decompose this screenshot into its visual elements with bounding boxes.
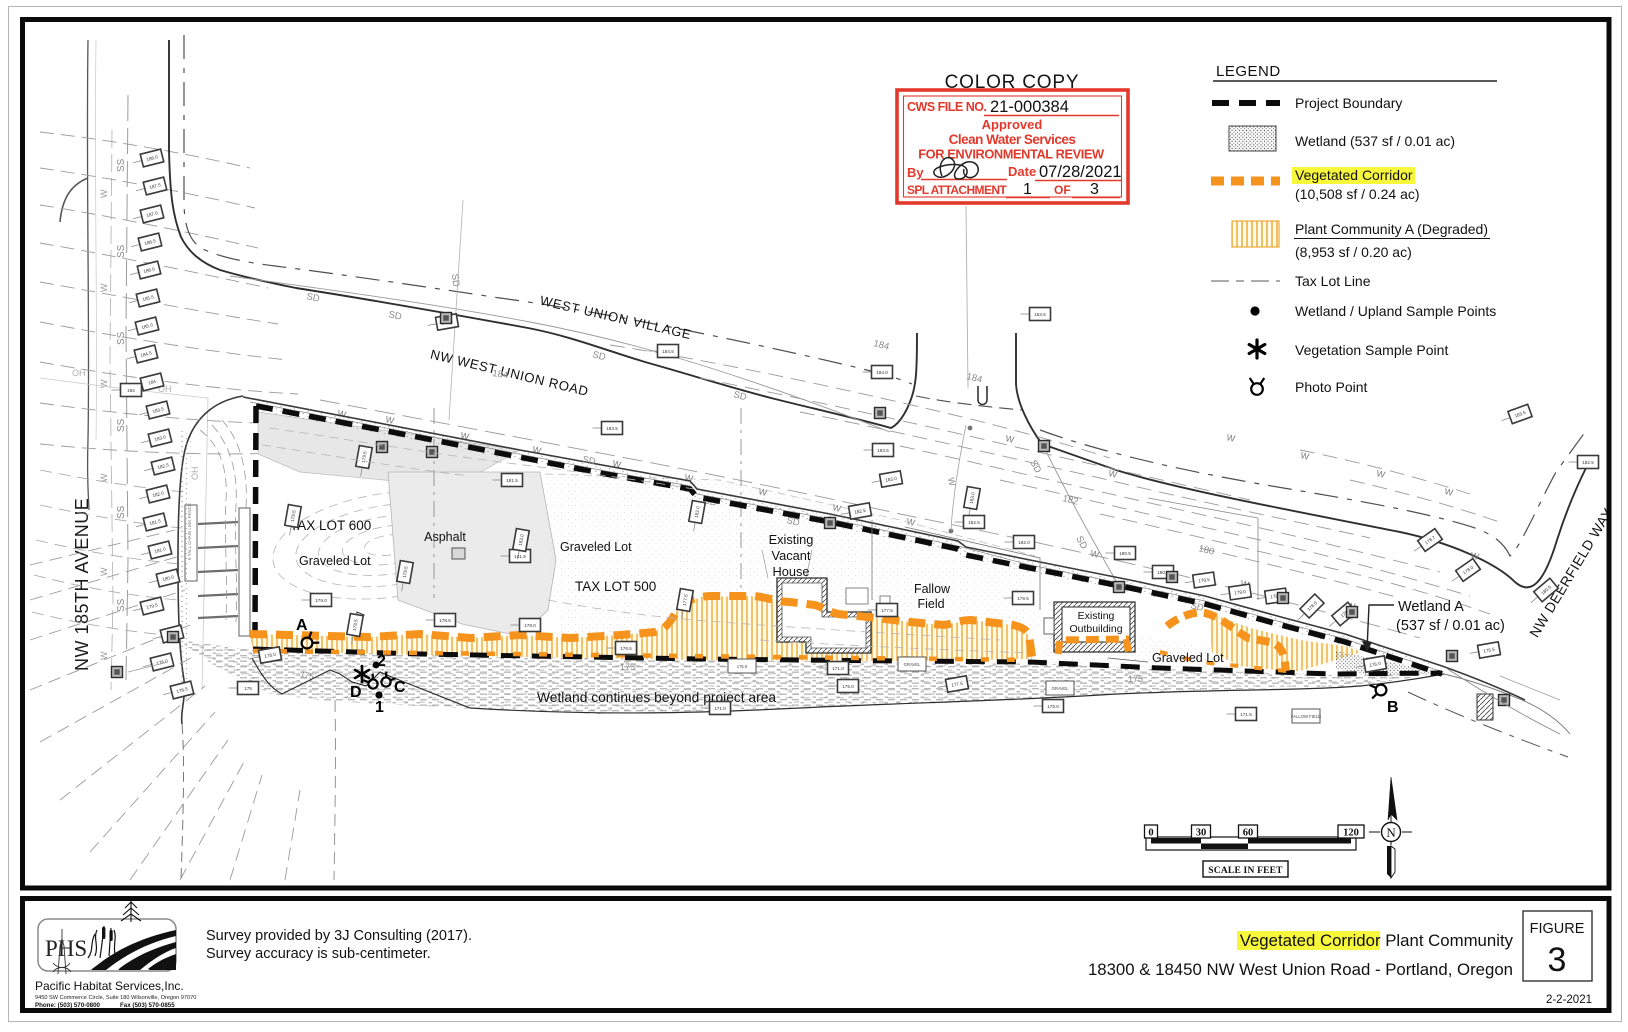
svg-text:183.5: 183.5 <box>877 448 889 453</box>
svg-text:178.5: 178.5 <box>439 618 451 623</box>
svg-text:Photo Point: Photo Point <box>1295 379 1367 395</box>
svg-text:Field: Field <box>917 597 944 611</box>
svg-text:175.0: 175.0 <box>1047 704 1059 709</box>
svg-text:TAX LOT 500: TAX LOT 500 <box>575 579 656 594</box>
svg-text:GRAVEL: GRAVEL <box>1052 686 1069 691</box>
svg-text:178.0: 178.0 <box>524 623 536 628</box>
svg-text:Plant Community A (Degraded): Plant Community A (Degraded) <box>1295 221 1488 237</box>
svg-text:OF: OF <box>1054 183 1071 197</box>
svg-text:A: A <box>296 617 308 634</box>
svg-text:CWS FILE NO.: CWS FILE NO. <box>907 100 986 114</box>
svg-text:171.5: 171.5 <box>1240 712 1252 717</box>
svg-text:TAX LOT 600: TAX LOT 600 <box>290 518 371 533</box>
svg-text:(10,508 sf / 0.24 ac): (10,508 sf / 0.24 ac) <box>1295 186 1420 202</box>
svg-text:179.5: 179.5 <box>1017 596 1029 601</box>
svg-text:SS: SS <box>116 244 127 258</box>
svg-text:Vegetated Corridor Plant Commu: Vegetated Corridor Plant Community <box>1240 931 1514 950</box>
svg-text:Fax (503) 570-0855: Fax (503) 570-0855 <box>120 1002 175 1009</box>
svg-text:D: D <box>350 684 362 701</box>
svg-text:LEGEND: LEGEND <box>1216 63 1281 80</box>
svg-text:6 TALL CHAIN LINK FENCE: 6 TALL CHAIN LINK FENCE <box>187 503 192 560</box>
svg-text:Date: Date <box>1008 164 1036 179</box>
svg-text:1: 1 <box>375 699 384 716</box>
svg-text:176.5: 176.5 <box>620 646 632 651</box>
svg-text:07/28/2021: 07/28/2021 <box>1039 163 1122 181</box>
svg-text:0: 0 <box>1148 828 1153 839</box>
svg-text:SS: SS <box>116 598 127 612</box>
svg-text:175.0: 175.0 <box>842 684 854 689</box>
svg-text:FIGURE: FIGURE <box>1530 921 1585 937</box>
svg-text:Wetland A: Wetland A <box>1398 599 1464 615</box>
svg-text:Tax Lot Line: Tax Lot Line <box>1295 273 1371 289</box>
svg-text:SS: SS <box>116 418 127 432</box>
svg-text:171.0: 171.0 <box>714 706 726 711</box>
svg-text:PHS: PHS <box>45 936 87 961</box>
svg-text:C: C <box>394 679 406 696</box>
svg-text:House: House <box>773 564 810 579</box>
svg-text:Existing: Existing <box>769 532 814 547</box>
svg-text:FOR ENVIRONMENTAL REVIEW: FOR ENVIRONMENTAL REVIEW <box>918 147 1105 162</box>
svg-text:Project Boundary: Project Boundary <box>1295 95 1402 111</box>
svg-text:18300 & 18450 NW West Union Ro: 18300 & 18450 NW West Union Road - Portl… <box>1088 960 1513 979</box>
svg-text:184: 184 <box>127 388 135 393</box>
svg-text:21-000384: 21-000384 <box>990 98 1069 116</box>
svg-text:Wetland (537 sf / 0.01 ac): Wetland (537 sf / 0.01 ac) <box>1295 133 1455 149</box>
svg-text:181.5: 181.5 <box>506 478 518 483</box>
svg-text:SCALE IN FEET: SCALE IN FEET <box>1208 866 1283 876</box>
svg-text:181.5: 181.5 <box>514 554 526 559</box>
svg-text:Asphalt: Asphalt <box>424 530 466 544</box>
svg-text:(8,953 sf / 0.20 ac): (8,953 sf / 0.20 ac) <box>1295 244 1412 260</box>
svg-text:Fallow: Fallow <box>914 582 951 596</box>
svg-text:W: W <box>99 189 109 198</box>
svg-text:SS: SS <box>116 158 127 172</box>
svg-text:GRAVEL: GRAVEL <box>904 662 921 667</box>
svg-text:Outbuilding: Outbuilding <box>1069 623 1122 635</box>
svg-text:3: 3 <box>1548 941 1567 979</box>
svg-text:3: 3 <box>1090 181 1099 198</box>
svg-text:W: W <box>99 567 109 576</box>
svg-text:1: 1 <box>1023 181 1032 198</box>
svg-text:Wetland / Upland Sample Points: Wetland / Upland Sample Points <box>1295 303 1496 319</box>
svg-text:183.5: 183.5 <box>1034 312 1046 317</box>
svg-text:SPL ATTACHMENT: SPL ATTACHMENT <box>907 183 1007 197</box>
svg-text:9450 SW Commerce Circle, Suite: 9450 SW Commerce Circle, Suite 180 Wilso… <box>35 995 196 1001</box>
svg-text:FALLOW FIELD: FALLOW FIELD <box>1291 714 1321 719</box>
svg-text:Vegetation Sample Point: Vegetation Sample Point <box>1295 342 1448 358</box>
svg-text:184.0: 184.0 <box>876 370 888 375</box>
svg-text:2-2-2021: 2-2-2021 <box>1546 994 1592 1006</box>
svg-text:179.0: 179.0 <box>315 598 327 603</box>
svg-text:Approved: Approved <box>982 117 1043 132</box>
svg-text:Graveled Lot: Graveled Lot <box>299 554 371 568</box>
svg-text:30: 30 <box>1196 828 1207 839</box>
svg-text:184.5: 184.5 <box>662 349 674 354</box>
svg-text:Survey provided by 3J Consulti: Survey provided by 3J Consulting (2017). <box>206 928 472 944</box>
svg-text:Survey accuracy is sub-centime: Survey accuracy is sub-centimeter. <box>206 946 431 962</box>
svg-text:Clean Water Services: Clean Water Services <box>949 132 1076 147</box>
svg-text:60: 60 <box>1243 828 1254 839</box>
svg-text:SD: SD <box>449 273 461 287</box>
svg-text:Existing: Existing <box>1078 610 1115 622</box>
svg-text:120: 120 <box>1343 828 1359 839</box>
svg-text:OH: OH <box>190 467 200 481</box>
svg-text:SS: SS <box>116 505 127 519</box>
svg-text:By: By <box>907 165 924 180</box>
svg-text:(537 sf / 0.01 ac): (537 sf / 0.01 ac) <box>1396 618 1505 634</box>
svg-text:Phone: (503) 570-0800: Phone: (503) 570-0800 <box>35 1002 101 1009</box>
svg-text:Graveled Lot: Graveled Lot <box>560 540 632 554</box>
svg-text:N: N <box>1386 825 1396 840</box>
svg-text:Graveled Lot: Graveled Lot <box>1152 651 1224 665</box>
svg-text:184: 184 <box>492 368 509 381</box>
svg-text:B: B <box>1387 699 1399 716</box>
svg-text:175: 175 <box>620 662 635 672</box>
svg-text:182.0: 182.0 <box>1018 540 1030 545</box>
svg-text:W: W <box>99 283 109 292</box>
svg-text:182.5: 182.5 <box>968 520 980 525</box>
svg-text:171.0: 171.0 <box>832 666 844 671</box>
svg-text:Wetland continues beyond proje: Wetland continues beyond project area <box>537 690 776 705</box>
svg-text:180.5: 180.5 <box>1119 551 1131 556</box>
svg-text:182.5: 182.5 <box>1582 460 1594 465</box>
svg-text:SS: SS <box>116 331 127 345</box>
svg-text:175.0: 175.0 <box>737 664 748 669</box>
svg-text:Vegetated Corridor: Vegetated Corridor <box>1295 167 1413 183</box>
svg-text:Vacant: Vacant <box>772 548 811 563</box>
svg-text:177.5: 177.5 <box>881 608 893 613</box>
svg-text:175: 175 <box>244 686 252 691</box>
svg-text:183.5: 183.5 <box>606 426 618 431</box>
svg-text:175: 175 <box>1128 674 1143 684</box>
svg-text:Pacific Habitat Services,Inc.: Pacific Habitat Services,Inc. <box>35 979 184 993</box>
